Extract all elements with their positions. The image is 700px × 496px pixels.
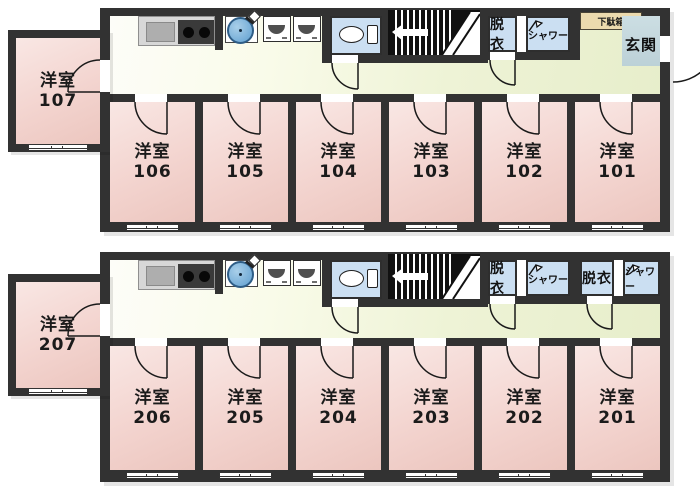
toilet-tank-icon	[367, 25, 378, 44]
room-105: 洋室 105	[203, 102, 288, 222]
room-202: 洋室 202	[482, 346, 567, 470]
room-type: 洋室	[600, 388, 636, 408]
room-number: 106	[133, 162, 172, 182]
stairs-graphic	[388, 254, 480, 299]
room-104: 洋室 104	[296, 102, 381, 222]
wall-stub	[215, 260, 223, 294]
stairs-direction-arrow	[392, 24, 428, 41]
stove-burner-icon	[183, 271, 194, 282]
dressing-room: 脱衣	[488, 16, 517, 52]
floor-2-plan: 脱衣 シャワー 脱衣 シャワー 洋室	[0, 244, 700, 496]
room-number: 101	[598, 162, 637, 182]
annex-door-gap	[100, 60, 110, 92]
room-type: 洋室	[135, 388, 171, 408]
room-type: 洋室	[321, 388, 357, 408]
room-number: 207	[39, 335, 78, 355]
annex-door-gap	[100, 304, 110, 336]
washing-machine-icon	[263, 260, 291, 286]
room-door-gap	[135, 338, 167, 346]
room-label: 洋室 204	[296, 346, 381, 470]
shower-door-gap	[517, 16, 526, 52]
toilet-door-gap	[332, 55, 358, 63]
stove-icon	[178, 20, 214, 44]
kitchen-sink	[146, 22, 175, 42]
basin-drain	[239, 29, 242, 32]
room-number: 202	[505, 408, 544, 428]
kitchen-counter	[138, 260, 215, 290]
window	[591, 224, 644, 231]
room-number: 206	[133, 408, 172, 428]
room-203: 洋室 203	[389, 346, 474, 470]
room-label: 洋室 104	[296, 102, 381, 222]
room-label: 洋室 103	[389, 102, 474, 222]
washing-machine-icon	[293, 16, 321, 42]
room-type: 洋室	[321, 142, 357, 162]
kitchen-counter	[138, 16, 215, 46]
stove-burner-icon	[199, 27, 210, 38]
dressing-room: 脱衣	[580, 260, 614, 296]
room-102: 洋室 102	[482, 102, 567, 222]
room-label: 洋室 106	[110, 102, 195, 222]
stairs-direction-arrow	[392, 268, 428, 285]
room-label: 洋室 206	[110, 346, 195, 470]
room-door-gap	[321, 338, 353, 346]
window	[591, 472, 644, 479]
window	[219, 472, 272, 479]
room-type: 洋室	[228, 388, 264, 408]
toilet-door-gap	[332, 299, 358, 307]
room-number: 107	[39, 91, 78, 111]
room-type: 洋室	[414, 388, 450, 408]
washing-machine-icon	[293, 260, 321, 286]
shower-door-gap	[517, 260, 526, 296]
dressing-room-label: 脱衣	[490, 14, 515, 54]
room-type: 洋室	[40, 315, 76, 335]
room-type: 洋室	[228, 142, 264, 162]
wall	[388, 55, 480, 63]
room-101: 洋室 101	[575, 102, 660, 222]
wall-stub	[570, 260, 580, 304]
floor-1-plan: 脱衣 シャワー 下駄箱 玄関 洋室 107	[0, 0, 700, 248]
room-door-gap	[507, 94, 539, 102]
room-type: 洋室	[600, 142, 636, 162]
window	[498, 472, 551, 479]
room-door-gap	[135, 94, 167, 102]
room-206: 洋室 206	[110, 346, 195, 470]
room-type: 洋室	[135, 142, 171, 162]
washing-machine-icon	[263, 16, 291, 42]
stove-icon	[178, 264, 214, 288]
room-type: 洋室	[507, 142, 543, 162]
window	[312, 224, 365, 231]
room-type: 洋室	[40, 71, 76, 91]
stove-burner-icon	[183, 27, 194, 38]
shower-door-gap	[614, 260, 623, 296]
room-door-gap	[507, 338, 539, 346]
room-label: 洋室 105	[203, 102, 288, 222]
room-label: 洋室 207	[16, 282, 100, 388]
room-number: 203	[412, 408, 451, 428]
room-door-gap	[414, 94, 446, 102]
room-205: 洋室 205	[203, 346, 288, 470]
toilet-icon	[339, 270, 364, 287]
stairs-graphic	[388, 10, 480, 55]
stairs-icon	[388, 10, 480, 55]
window	[405, 472, 458, 479]
toilet-room	[330, 260, 382, 299]
stairs-icon	[388, 254, 480, 299]
room-207: 洋室 207	[16, 282, 100, 388]
room-door-gap	[600, 338, 632, 346]
entrance-door-arc	[673, 38, 700, 82]
room-type: 洋室	[507, 388, 543, 408]
dressing-room: 脱衣	[488, 260, 517, 296]
room-201: 洋室 201	[575, 346, 660, 470]
room-label: 洋室 203	[389, 346, 474, 470]
room-number: 205	[226, 408, 265, 428]
window	[405, 224, 458, 231]
toilet-icon	[339, 26, 364, 43]
window	[126, 472, 179, 479]
room-door-gap	[228, 94, 260, 102]
room-label: 洋室 101	[575, 102, 660, 222]
entrance-door-gap	[660, 36, 670, 62]
toilet-tank-icon	[367, 269, 378, 288]
wall-stub	[215, 16, 223, 50]
dressing-room-label: 脱衣	[490, 258, 515, 298]
floor-plan: 脱衣 シャワー 下駄箱 玄関 洋室 107	[0, 0, 700, 496]
room-103: 洋室 103	[389, 102, 474, 222]
shower-head-icon	[527, 261, 543, 277]
shower-head-icon	[527, 17, 543, 33]
room-number: 103	[412, 162, 451, 182]
room-204: 洋室 204	[296, 346, 381, 470]
window	[28, 144, 88, 151]
dressing-door-gap	[490, 296, 515, 304]
window	[28, 388, 88, 395]
room-number: 102	[505, 162, 544, 182]
dressing-door-gap	[587, 296, 612, 304]
shower-head-icon	[624, 261, 640, 277]
window	[312, 472, 365, 479]
wall	[388, 299, 480, 307]
room-label: 洋室 107	[16, 38, 100, 144]
wall-stub	[570, 16, 580, 60]
room-number: 201	[598, 408, 637, 428]
room-label: 洋室 202	[482, 346, 567, 470]
window	[219, 224, 272, 231]
window	[126, 224, 179, 231]
room-label: 洋室 201	[575, 346, 660, 470]
room-door-gap	[414, 338, 446, 346]
stove-burner-icon	[199, 271, 210, 282]
room-number: 105	[226, 162, 265, 182]
room-107: 洋室 107	[16, 38, 100, 144]
toilet-room	[330, 16, 382, 55]
kitchen-sink	[146, 266, 175, 286]
shoe-cabinet-label: 下駄箱	[597, 15, 624, 28]
room-number: 104	[319, 162, 358, 182]
entrance-label: 玄関	[625, 34, 657, 66]
room-106: 洋室 106	[110, 102, 195, 222]
room-label: 洋室 102	[482, 102, 567, 222]
room-label: 洋室 205	[203, 346, 288, 470]
room-door-gap	[321, 94, 353, 102]
dressing-room-label: 脱衣	[582, 268, 612, 288]
room-door-gap	[600, 94, 632, 102]
room-type: 洋室	[414, 142, 450, 162]
room-door-gap	[228, 338, 260, 346]
entrance-area: 玄関	[622, 16, 660, 66]
room-number: 204	[319, 408, 358, 428]
window	[498, 224, 551, 231]
dressing-door-gap	[490, 52, 515, 60]
basin-drain	[239, 273, 242, 276]
